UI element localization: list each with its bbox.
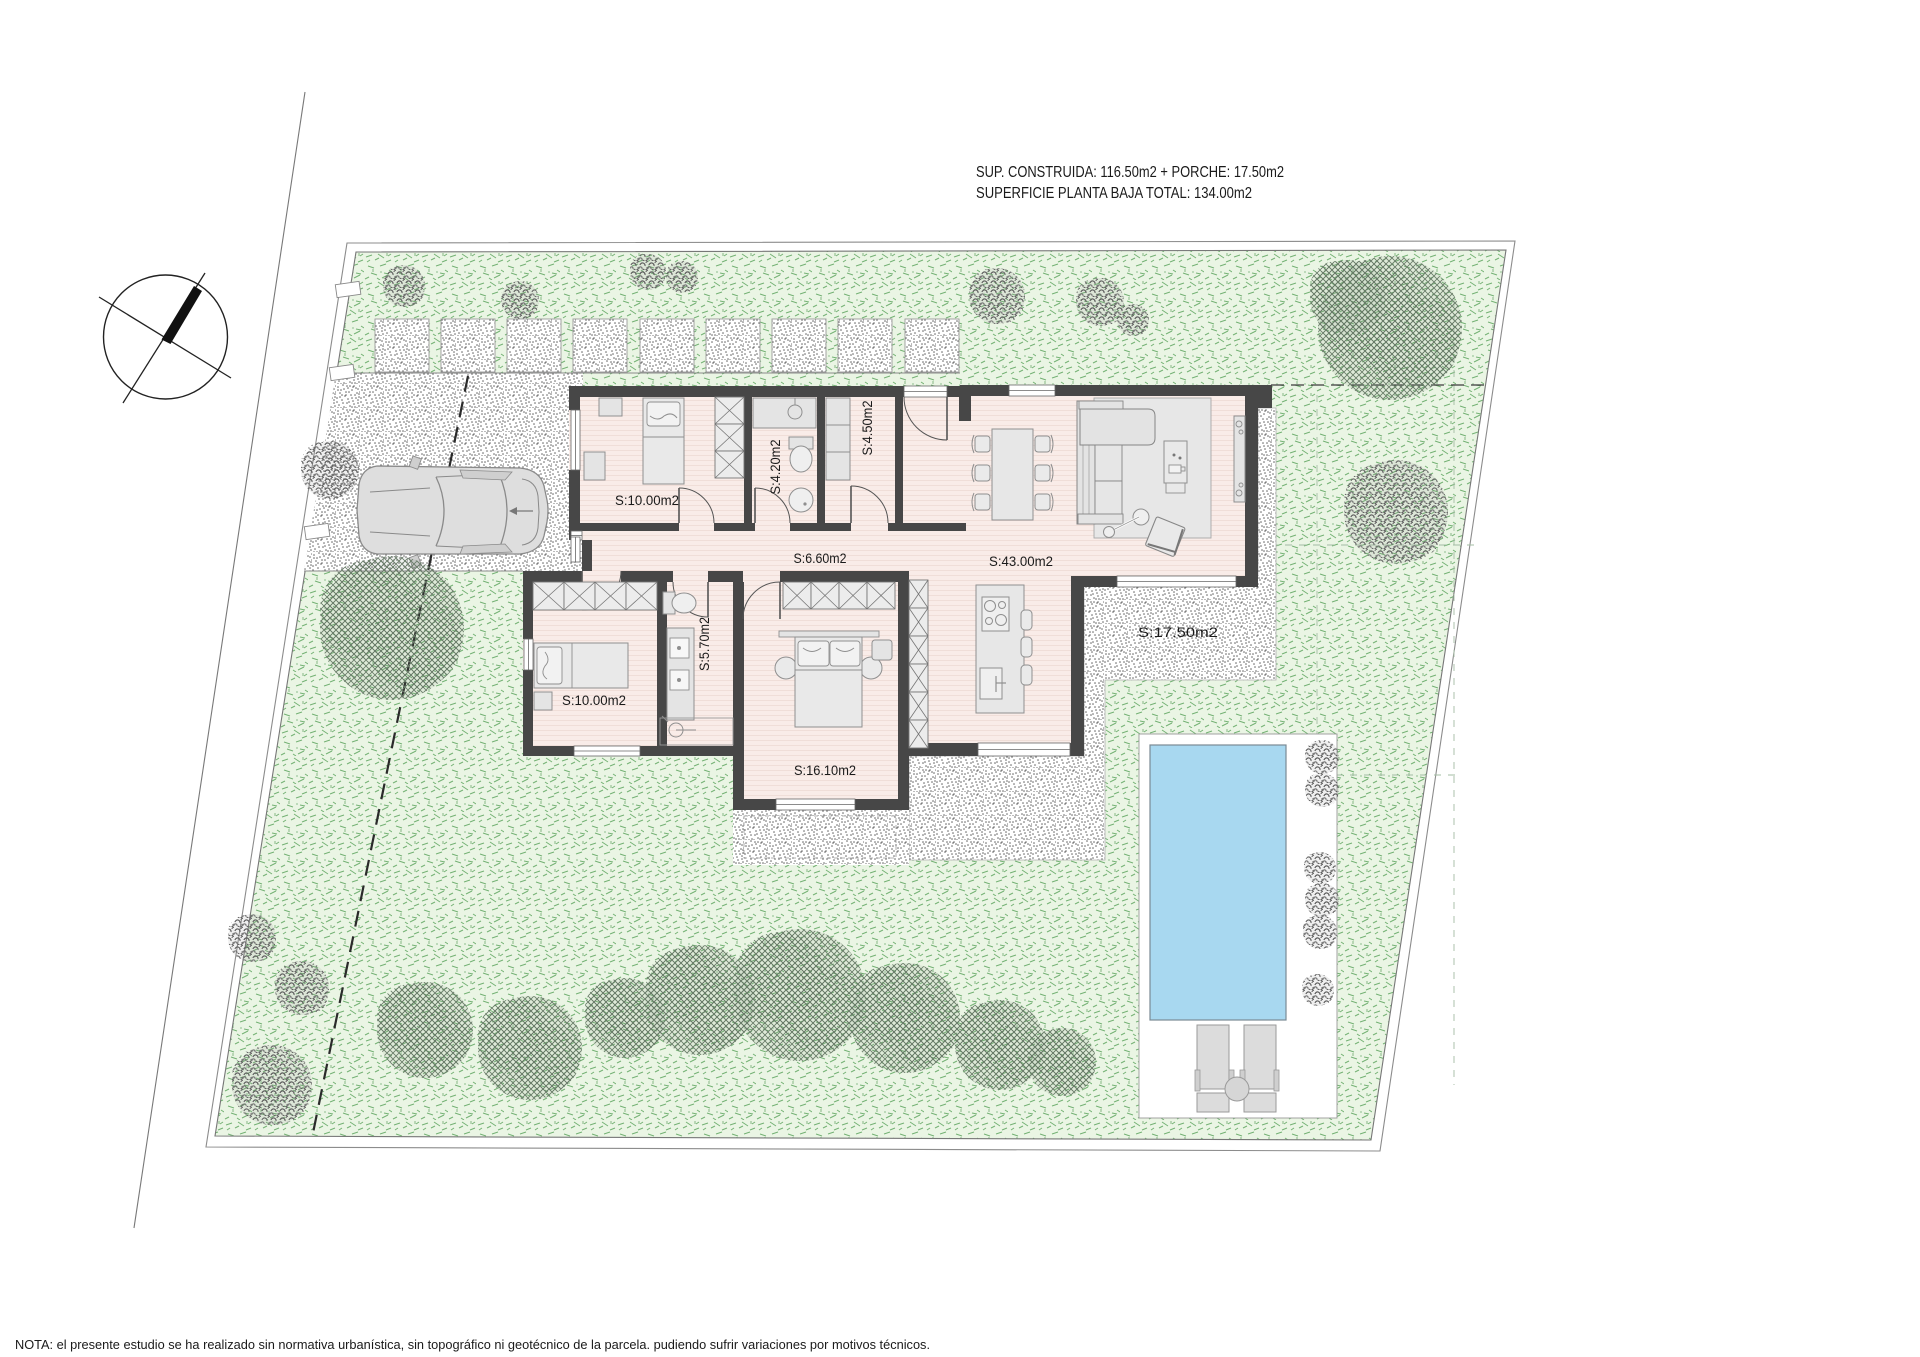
svg-text:NOTA: el presente estudio se h: NOTA: el presente estudio se ha realizad… (15, 1337, 930, 1352)
svg-text:S:4.20m2: S:4.20m2 (768, 440, 783, 495)
svg-text:S:10.00m2: S:10.00m2 (562, 693, 626, 708)
svg-text:S:17.50m2: S:17.50m2 (1138, 625, 1218, 640)
svg-text:SUPERFICIE PLANTA BAJA TOTAL:: SUPERFICIE PLANTA BAJA TOTAL: 134.00m2 (976, 185, 1252, 202)
svg-text:S:16.10m2: S:16.10m2 (794, 763, 856, 778)
svg-text:S:4.50m2: S:4.50m2 (860, 401, 875, 456)
svg-text:SUP. CONSTRUIDA: 116.50m2 + PO: SUP. CONSTRUIDA: 116.50m2 + PORCHE: 17.5… (976, 164, 1284, 181)
svg-text:S:43.00m2: S:43.00m2 (989, 554, 1053, 569)
svg-text:S:5.70m2: S:5.70m2 (697, 617, 712, 671)
svg-text:S:6.60m2: S:6.60m2 (794, 551, 847, 566)
svg-text:S:10.00m2: S:10.00m2 (615, 493, 679, 508)
